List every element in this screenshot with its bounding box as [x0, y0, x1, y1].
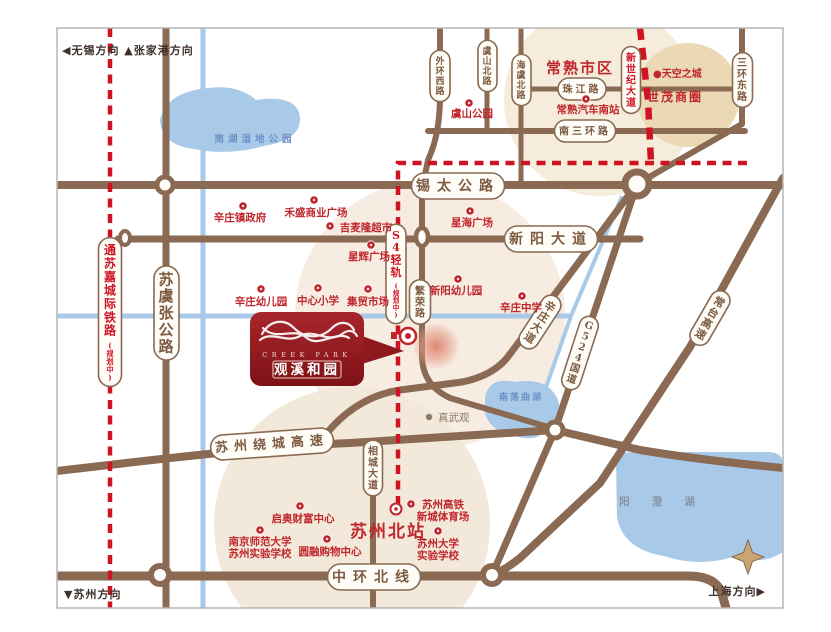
road-label-pill: 新世纪大道 [622, 47, 641, 114]
road-label-pill: 新阳大道 [505, 226, 598, 252]
poi-dot-center [299, 505, 301, 507]
poi-label: 苏州高铁新城体育场 [417, 498, 470, 523]
svg-text:中环北线: 中环北线 [332, 569, 416, 586]
road-label-pill: 相城大道 [364, 440, 383, 496]
road-label-pill: 中环北线 [328, 564, 421, 590]
svg-text:新世纪大道: 新世纪大道 [626, 51, 636, 109]
poi-dot-center [313, 199, 315, 201]
svg-text:南三环路: 南三环路 [559, 125, 611, 138]
road-label-pill: S4轻轨(规划中) [386, 224, 406, 323]
poi-label: 圆融购物中心 [299, 545, 362, 558]
lake-label: 阳澄湖 [619, 495, 717, 508]
project-site-glow [412, 322, 460, 370]
svg-text:海虞北路: 海虞北路 [516, 59, 526, 101]
area-label: 常熟市区 [546, 59, 614, 77]
road-label-pill: 苏虞张公路 [154, 266, 179, 360]
svg-text:虞山北路: 虞山北路 [482, 45, 492, 87]
poi-marker: 辛庄幼儿园 [235, 285, 288, 308]
poi-dot-center [469, 210, 471, 212]
area-label: 世茂商圈 [647, 89, 703, 104]
poi-marker: 禾盛商业广场 [284, 196, 348, 219]
poi-dot-center [585, 98, 587, 100]
poi-dot-center [410, 503, 412, 505]
road-label-pill: 锡太公路 [412, 173, 505, 199]
poi-label: 启奥财富中心 [272, 512, 335, 525]
road-label-pill: 常台高速 [686, 287, 733, 349]
road-label-pill: G524国道 [559, 314, 601, 392]
road-label-pill: 外环西路 [430, 50, 450, 101]
lake-label: 南湖湿地公园 [214, 133, 295, 145]
poi-marker: 辛庄镇政府 [214, 202, 267, 224]
poi-label: 新阳幼儿园 [430, 284, 483, 297]
poi-label: 集贸市场 [346, 295, 389, 308]
svg-text:繁荣路: 繁荣路 [414, 284, 426, 319]
poi-dot-center [259, 529, 261, 531]
poi-dot-center [242, 205, 244, 207]
poi-dot-center [317, 287, 319, 289]
location-map-page: 锡太公路新阳大道南三环路珠江路中环北线苏州绕城高速苏虞张公路外环西路虞山北路海虞… [0, 0, 831, 632]
logo-cn-name: 观溪和园 [274, 361, 340, 378]
poi-label: 虞山公园 [451, 107, 493, 120]
logo-en-name: CREEK PARK [262, 351, 352, 359]
poi-dot-center [370, 244, 372, 246]
svg-text:相城大道: 相城大道 [368, 445, 378, 492]
svg-text:珠江路: 珠江路 [563, 83, 602, 96]
svg-text:新阳大道: 新阳大道 [509, 231, 593, 248]
road-label-pill: 虞山北路 [478, 40, 497, 91]
area-label: ●天空之城 [653, 67, 702, 80]
poi-dot-center [468, 102, 470, 104]
area-label: 苏州北站 [350, 521, 426, 542]
poi-label: 辛庄幼儿园 [235, 295, 288, 308]
poi-dot-center [326, 538, 328, 540]
road-label-pill: 通苏嘉城际铁路(规划中) [98, 238, 121, 387]
poi-dot-center [457, 278, 459, 280]
area-dot-icon [426, 414, 432, 420]
road-label-pill: 繁荣路 [410, 280, 431, 324]
poi-label: 星海广场 [451, 216, 493, 229]
poi-label: 中心小学 [297, 294, 339, 307]
road-label-pill: 南三环路 [555, 120, 616, 142]
svg-text:苏虞张公路: 苏虞张公路 [158, 270, 174, 355]
svg-text:三环东路: 三环东路 [737, 57, 748, 103]
svg-text:锡太公路: 锡太公路 [416, 178, 500, 195]
poi-label: 南京师范大学苏州实验学校 [229, 535, 292, 560]
road-label-pill: 三环东路 [733, 53, 753, 108]
poi-label: 辛庄镇政府 [214, 211, 267, 224]
poi-dot-center [367, 288, 369, 290]
area-label-text: 苏州北站 [350, 521, 426, 542]
area-label-text: ●天空之城 [653, 67, 702, 80]
poi-label: 星辉广场 [348, 250, 390, 263]
road-label-pill: 海虞北路 [512, 54, 531, 105]
poi-dot-center [521, 295, 523, 297]
location-map: 锡太公路新阳大道南三环路珠江路中环北线苏州绕城高速苏虞张公路外环西路虞山北路海虞… [0, 0, 831, 632]
poi-label: 吉麦隆超市 [340, 221, 393, 234]
svg-text:外环西路: 外环西路 [434, 55, 445, 97]
direction-label: 上海方向▶ [709, 584, 766, 598]
poi-dot-center [437, 530, 439, 532]
area-label-text: 世茂商圈 [647, 89, 703, 104]
direction-label: ▼苏州方向 [64, 587, 121, 601]
area-label-text: 常熟市区 [546, 59, 614, 77]
poi-dot-center [260, 288, 262, 290]
direction-label: ◀无锡方向 ▲张家港方向 [62, 43, 194, 57]
poi-dot-center [329, 225, 331, 227]
suzhou-north-station-icon [391, 504, 402, 515]
poi-label: 辛庄中学 [500, 301, 542, 314]
poi-label: 禾盛商业广场 [284, 206, 348, 219]
poi-label: 常熟汽车南站 [557, 103, 620, 116]
lake-label: 南荡曲湖 [499, 391, 543, 403]
road-label-pill: 珠江路 [558, 78, 606, 100]
area-label-text: 真武观 [438, 411, 470, 424]
